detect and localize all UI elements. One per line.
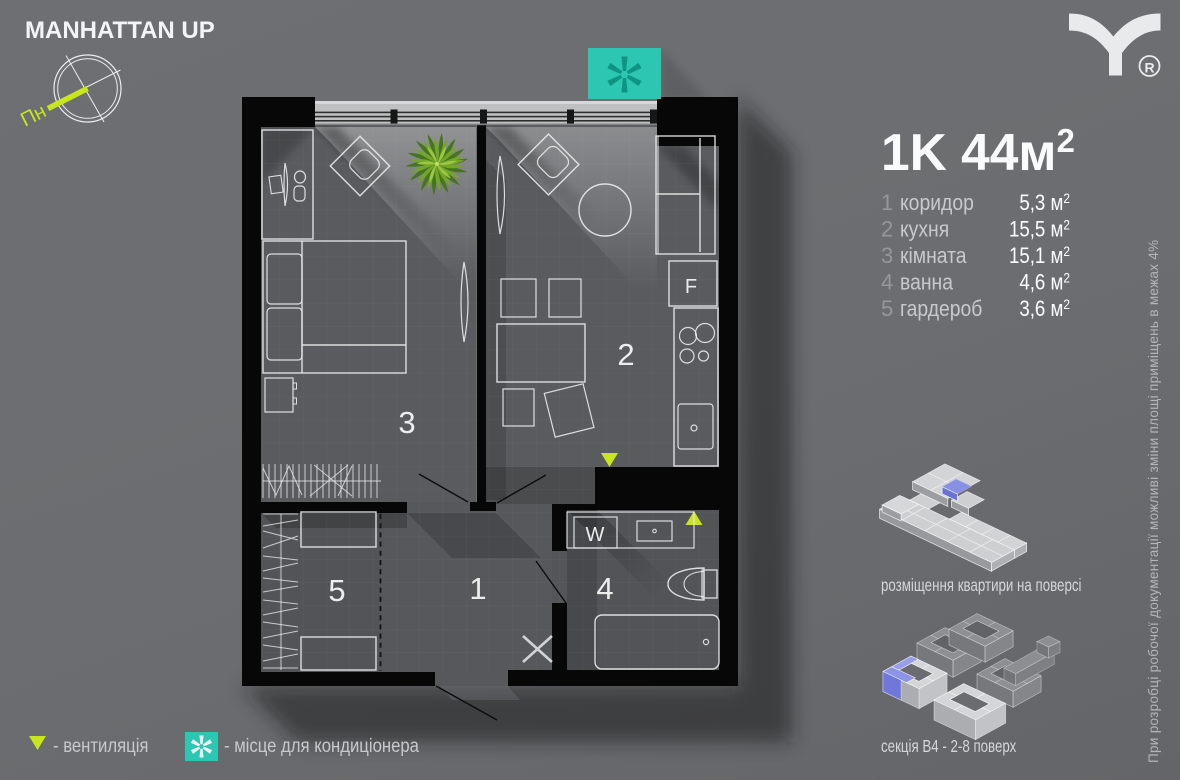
svg-text:4,6 м2: 4,6 м2 (1019, 270, 1070, 295)
svg-text:5: 5 (881, 296, 893, 321)
svg-text:3: 3 (398, 405, 415, 440)
svg-text:2: 2 (617, 337, 634, 372)
svg-text:4: 4 (596, 571, 613, 606)
svg-text:секція В4 - 2-8 поверх: секція В4 - 2-8 поверх (881, 737, 1016, 756)
svg-text:Пн: Пн (17, 100, 50, 131)
svg-text:W: W (586, 524, 605, 546)
svg-text:- вентиляція: - вентиляція (53, 735, 148, 756)
svg-text:ванна: ванна (900, 270, 953, 294)
svg-text:MANHATTAN UP: MANHATTAN UP (25, 17, 215, 44)
svg-text:кімната: кімната (900, 244, 967, 268)
svg-text:F: F (685, 276, 697, 298)
svg-text:1: 1 (881, 190, 893, 215)
svg-text:4: 4 (881, 270, 893, 295)
svg-text:5,3 м2: 5,3 м2 (1019, 190, 1070, 215)
svg-text:15,5 м2: 15,5 м2 (1009, 217, 1070, 242)
svg-text:кухня: кухня (900, 217, 949, 241)
svg-text:R: R (1144, 60, 1154, 76)
svg-text:розміщення квартири на поверсі: розміщення квартири на поверсі (881, 576, 1081, 595)
svg-text:5: 5 (328, 573, 345, 608)
svg-text:3,6 м2: 3,6 м2 (1019, 296, 1070, 321)
svg-text:При розробці робочої документа: При розробці робочої документації можлив… (1146, 240, 1161, 763)
svg-text:1K 44м2: 1K 44м2 (881, 122, 1075, 181)
svg-text:- місце для кондиціонера: - місце для кондиціонера (224, 735, 419, 756)
svg-text:1: 1 (469, 571, 486, 606)
svg-text:гардероб: гардероб (900, 297, 982, 321)
svg-text:15,1 м2: 15,1 м2 (1009, 243, 1070, 268)
svg-text:3: 3 (881, 243, 893, 268)
svg-text:коридор: коридор (900, 191, 974, 215)
svg-text:2: 2 (881, 217, 893, 242)
